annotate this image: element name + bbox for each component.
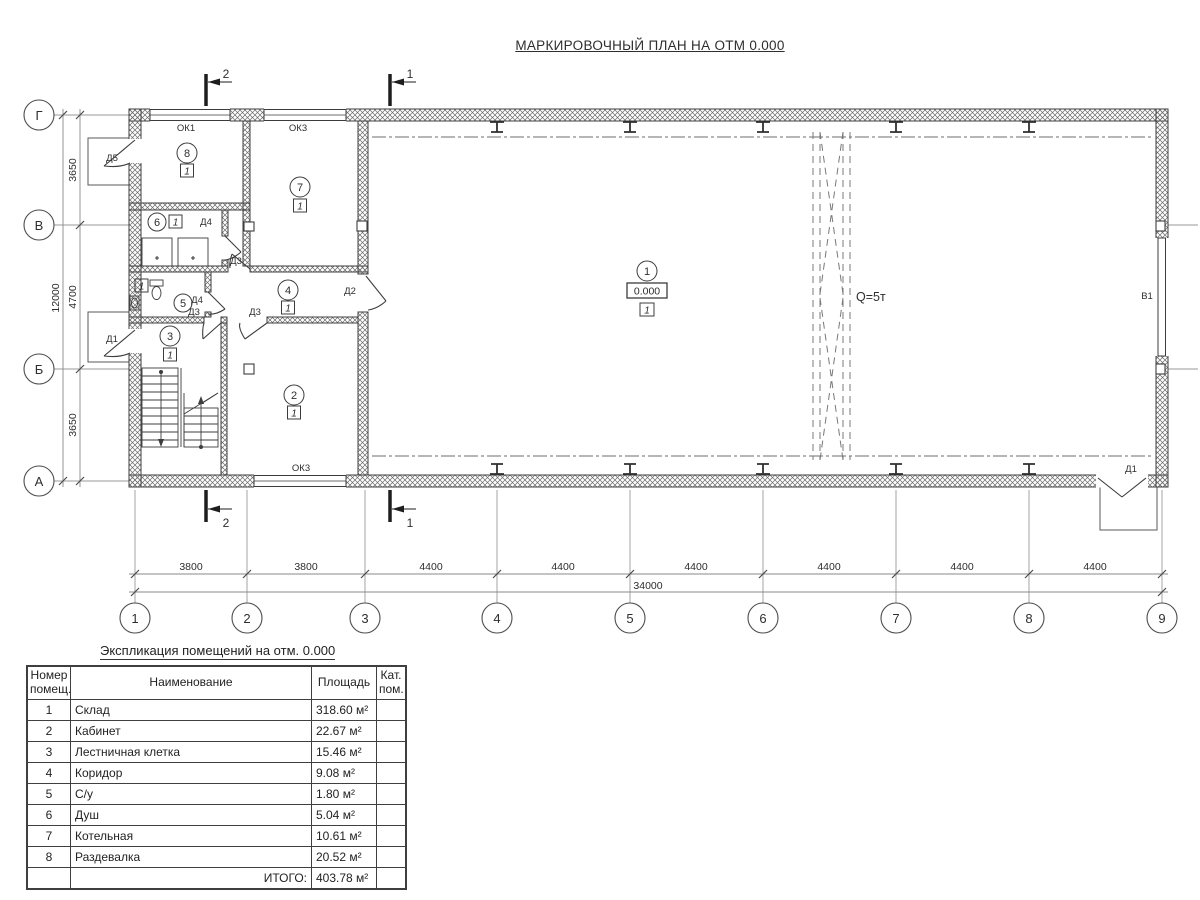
crane-runway <box>372 137 1154 456</box>
room-schedule: Экспликация помещений на отм. 0.000 Номе… <box>26 642 404 890</box>
room-7-category: 1 <box>297 202 303 213</box>
table-row: 3 Лестничная клетка 15.46 м² <box>27 741 406 762</box>
window-label-ok1: ОК1 <box>177 123 195 134</box>
room-2-category: 1 <box>291 409 297 420</box>
room-6-category: 1 <box>173 218 179 229</box>
window-label-ok3-top: ОК3 <box>289 123 307 134</box>
dim-b-a: 3650 <box>67 413 79 437</box>
svg-text:В: В <box>35 218 44 233</box>
room-8-number: 8 <box>184 148 190 160</box>
table-row: 8 Раздевалка 20.52 м² <box>27 846 406 867</box>
dim-6-7: 4400 <box>817 561 841 573</box>
gate-v1: В1 <box>1141 238 1168 356</box>
dim-1-2: 3800 <box>179 561 203 573</box>
table-row: 7 Котельная 10.61 м² <box>27 825 406 846</box>
col-header-number: Номерпомещ. <box>27 666 71 699</box>
room-8-category: 1 <box>184 167 190 178</box>
room-marker-texts: 1 0.000 1 2 1 3 1 4 1 5 1 6 1 7 1 8 1 <box>139 148 661 420</box>
axis-labels-left: Г В Б А <box>35 108 44 489</box>
dimensions-bottom: 3800 3800 4400 4400 4400 4400 4400 4400 … <box>129 561 1168 596</box>
door-label-d5: Д5 <box>106 153 118 164</box>
col-header-category: Кат.пом. <box>377 666 407 699</box>
toilet-icon <box>150 280 163 300</box>
room-2-number: 2 <box>291 390 297 402</box>
svg-text:6: 6 <box>759 611 766 626</box>
door-label-d3-office: Д3 <box>249 307 261 318</box>
table-row: 5 С/у 1.80 м² <box>27 783 406 804</box>
crane-capacity-label: Q=5т <box>856 290 886 304</box>
door-label-d4-shower: Д4 <box>200 217 212 228</box>
door-labels: Д5 Д1 Д4 Д4 Д3 Д3 Д3 Д2 Д1 <box>106 153 1137 475</box>
schedule-header-row: Номерпомещ. Наименование Площадь Кат.пом… <box>27 666 406 699</box>
section-1-top: 1 <box>407 67 414 81</box>
dim-5-6: 4400 <box>684 561 708 573</box>
dimensions-left: 3650 4700 3650 12000 <box>50 109 84 487</box>
door-label-d3-hall: Д3 <box>230 256 242 267</box>
room-7-number: 7 <box>297 182 303 194</box>
stairs <box>142 368 218 447</box>
svg-text:5: 5 <box>626 611 633 626</box>
table-row: 6 Душ 5.04 м² <box>27 804 406 825</box>
dim-total-left: 12000 <box>50 283 62 312</box>
svg-text:2: 2 <box>243 611 250 626</box>
door-label-d1-bottom: Д1 <box>1125 464 1137 475</box>
svg-text:1: 1 <box>131 611 138 626</box>
steel-columns <box>490 122 1036 474</box>
gate-label: В1 <box>1141 291 1153 302</box>
svg-text:8: 8 <box>1025 611 1032 626</box>
room-1-elevation: 0.000 <box>634 286 660 298</box>
table-row: 1 Склад 318.60 м² <box>27 699 406 720</box>
table-row: 4 Коридор 9.08 м² <box>27 762 406 783</box>
svg-text:Г: Г <box>35 108 42 123</box>
room-3-number: 3 <box>167 331 173 343</box>
schedule-total-row: ИТОГО: 403.78 м² <box>27 867 406 889</box>
window-label-ok3-bottom: ОК3 <box>292 463 310 474</box>
col-header-name: Наименование <box>71 666 312 699</box>
drawing-sheet: { "page_title": "МАРКИРОВОЧНЫЙ ПЛАН НА О… <box>0 0 1200 900</box>
room-5-number: 5 <box>180 298 186 310</box>
door-label-d4-wc: Д4 <box>191 295 203 306</box>
axis-labels-bottom: 1 2 3 4 5 6 7 8 9 <box>131 611 1165 626</box>
section-2-top: 2 <box>223 67 230 81</box>
svg-text:9: 9 <box>1158 611 1165 626</box>
dim-3-4: 4400 <box>419 561 443 573</box>
total-label: ИТОГО: <box>71 867 312 889</box>
doors <box>104 139 1148 497</box>
room-1-category: 1 <box>644 306 650 317</box>
door-label-d2: Д2 <box>344 286 356 297</box>
section-2-bottom: 2 <box>223 516 230 530</box>
room-4-number: 4 <box>285 285 291 297</box>
total-area: 403.78 м² <box>312 867 377 889</box>
dim-8-9: 4400 <box>1083 561 1107 573</box>
svg-text:3: 3 <box>361 611 368 626</box>
room-6-number: 6 <box>154 217 160 229</box>
section-1-bottom: 1 <box>407 516 414 530</box>
room-4-category: 1 <box>285 304 291 315</box>
schedule-title: Экспликация помещений на отм. 0.000 <box>100 643 335 660</box>
dim-2-3: 3800 <box>294 561 318 573</box>
dim-total-bottom: 34000 <box>633 580 662 592</box>
dim-g-v: 3650 <box>67 158 79 182</box>
svg-text:4: 4 <box>493 611 500 626</box>
crane-bridge <box>813 132 850 460</box>
shower-stall <box>178 238 208 266</box>
room-3-category: 1 <box>167 351 173 362</box>
axis-bubbles-bottom <box>120 603 1177 633</box>
table-row: 2 Кабинет 22.67 м² <box>27 720 406 741</box>
room-markers <box>135 143 667 419</box>
room-5-category: 1 <box>139 282 145 293</box>
grid-column-marks <box>244 221 1165 374</box>
floor-plan: 3800 3800 4400 4400 4400 4400 4400 4400 … <box>0 0 1200 640</box>
room-1-number: 1 <box>644 266 650 278</box>
svg-text:7: 7 <box>892 611 899 626</box>
dim-v-b: 4700 <box>67 285 79 309</box>
svg-text:Б: Б <box>35 362 44 377</box>
svg-text:А: А <box>35 474 44 489</box>
shower-stall <box>142 238 172 266</box>
dim-7-8: 4400 <box>950 561 974 573</box>
col-header-area: Площадь <box>312 666 377 699</box>
schedule-table: Номерпомещ. Наименование Площадь Кат.пом… <box>26 665 407 890</box>
dim-4-5: 4400 <box>551 561 575 573</box>
door-label-d1-left: Д1 <box>106 334 118 345</box>
